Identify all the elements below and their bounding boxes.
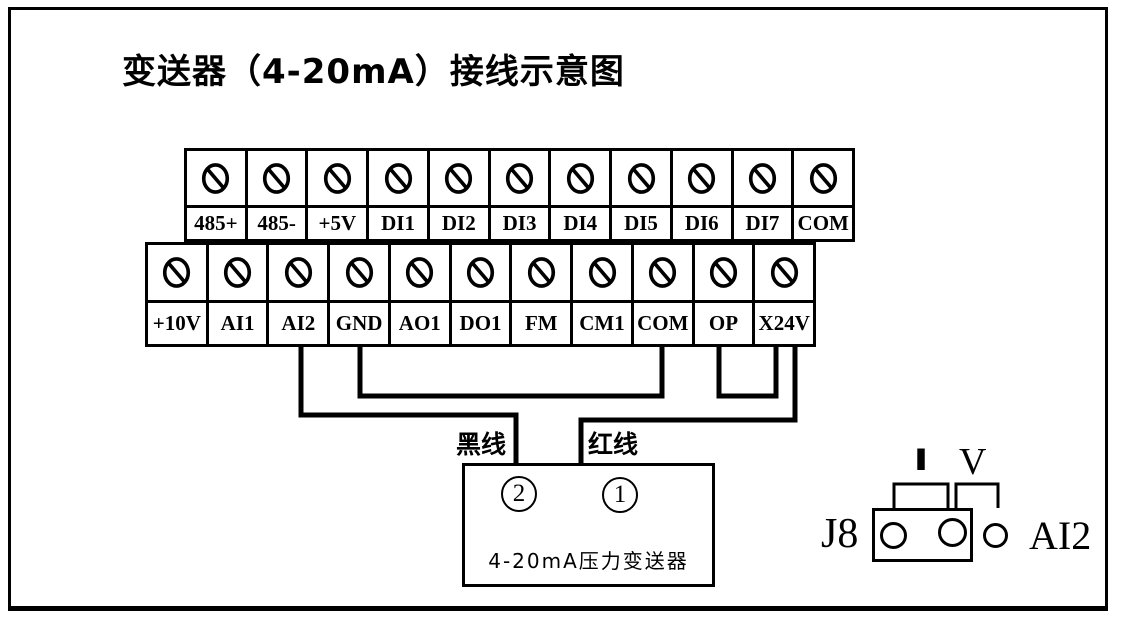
screw-cell: [248, 151, 309, 208]
wiring-diagram-page: 变送器（4-20mA）接线示意图 485+ 485- +5V DI1 DI2 D…: [0, 0, 1125, 624]
terminal-label-di2: DI2: [430, 208, 491, 239]
terminal-label-x24v: X24V: [755, 303, 813, 344]
terminal-label-di4: DI4: [551, 208, 612, 239]
terminal-label-ai1: AI1: [209, 303, 270, 344]
screw-terminal-icon: [466, 256, 495, 289]
terminal-label-di1: DI1: [369, 208, 430, 239]
screw-cell: [512, 245, 573, 303]
top-terminal-strip: 485+ 485- +5V DI1 DI2 DI3 DI4 DI5 DI6 DI…: [184, 148, 855, 242]
screw-cell: [673, 151, 734, 208]
terminal-label-com-top: COM: [794, 208, 852, 239]
jumper-pin-2: [938, 518, 967, 547]
screw-terminal-icon: [566, 162, 595, 195]
screw-cell: [452, 245, 513, 303]
screw-terminal-icon: [444, 162, 473, 195]
screw-cell: [551, 151, 612, 208]
jumper-pin-1: [880, 522, 907, 549]
j8-connector-label: J8: [821, 513, 858, 555]
screw-cell: [269, 245, 330, 303]
transmitter-terminal-2: 2: [501, 476, 537, 512]
screw-cell: [491, 151, 552, 208]
screw-terminal-icon: [809, 162, 838, 195]
terminal-label-485p: 485+: [187, 208, 248, 239]
screw-cell: [148, 245, 209, 303]
terminal-label-di7: DI7: [734, 208, 795, 239]
screw-cell: [734, 151, 795, 208]
screw-terminal-icon: [162, 256, 191, 289]
jumper-pin-3: [983, 523, 1008, 548]
screw-terminal-icon: [505, 162, 534, 195]
transmitter-label: 4-20mA压力变送器: [465, 545, 712, 574]
terminal-label-fm: FM: [512, 303, 573, 344]
current-position-label: I: [912, 446, 930, 475]
screw-terminal-icon: [323, 162, 352, 195]
top-label-row: 485+ 485- +5V DI1 DI2 DI3 DI4 DI5 DI6 DI…: [187, 208, 852, 239]
screw-terminal-icon: [588, 256, 617, 289]
voltage-position-label: V: [959, 443, 986, 481]
screw-cell: [695, 245, 756, 303]
terminal-label-ao1: AO1: [391, 303, 452, 344]
terminal-label-ai2: AI2: [269, 303, 330, 344]
screw-cell: [794, 151, 852, 208]
screw-terminal-icon: [345, 256, 374, 289]
screw-cell: [308, 151, 369, 208]
transmitter-terminal-1: 1: [602, 477, 638, 513]
red-wire-label: 红线: [588, 425, 638, 461]
terminal-label-di5: DI5: [612, 208, 673, 239]
terminal-label-gnd: GND: [330, 303, 391, 344]
terminal-label-di3: DI3: [491, 208, 552, 239]
screw-cell: [391, 245, 452, 303]
terminal-label-cm1: CM1: [573, 303, 634, 344]
pressure-transmitter-box: 2 1 4-20mA压力变送器: [462, 463, 715, 587]
screw-cell: [430, 151, 491, 208]
screw-cell: [369, 151, 430, 208]
screw-cell: [612, 151, 673, 208]
screw-cell: [634, 245, 695, 303]
top-screw-row: [187, 151, 852, 208]
screw-cell: [209, 245, 270, 303]
terminal-label-10v: +10V: [148, 303, 209, 344]
terminal-label-do1: DO1: [452, 303, 513, 344]
terminal-label-com-bottom: COM: [634, 303, 695, 344]
black-wire-label: 黑线: [456, 425, 506, 461]
screw-terminal-icon: [284, 256, 313, 289]
terminal-label-op: OP: [695, 303, 756, 344]
screw-terminal-icon: [223, 256, 252, 289]
screw-terminal-icon: [527, 256, 556, 289]
screw-terminal-icon: [627, 162, 656, 195]
screw-terminal-icon: [687, 162, 716, 195]
jumper-signal-label: AI2: [1029, 516, 1091, 556]
bottom-screw-row: [148, 245, 813, 303]
terminal-label-di6: DI6: [673, 208, 734, 239]
diagram-title: 变送器（4-20mA）接线示意图: [122, 44, 625, 93]
screw-terminal-icon: [201, 162, 230, 195]
screw-terminal-icon: [748, 162, 777, 195]
screw-terminal-icon: [405, 256, 434, 289]
bottom-label-row: +10V AI1 AI2 GND AO1 DO1 FM CM1 COM OP X…: [148, 303, 813, 344]
screw-cell: [573, 245, 634, 303]
screw-cell: [755, 245, 813, 303]
screw-terminal-icon: [384, 162, 413, 195]
screw-cell: [187, 151, 248, 208]
bottom-terminal-strip: +10V AI1 AI2 GND AO1 DO1 FM CM1 COM OP X…: [145, 242, 816, 347]
screw-terminal-icon: [709, 256, 738, 289]
terminal-label-5v: +5V: [308, 208, 369, 239]
screw-terminal-icon: [262, 162, 291, 195]
terminal-label-485n: 485-: [248, 208, 309, 239]
screw-terminal-icon: [648, 256, 677, 289]
screw-cell: [330, 245, 391, 303]
screw-terminal-icon: [770, 256, 799, 289]
